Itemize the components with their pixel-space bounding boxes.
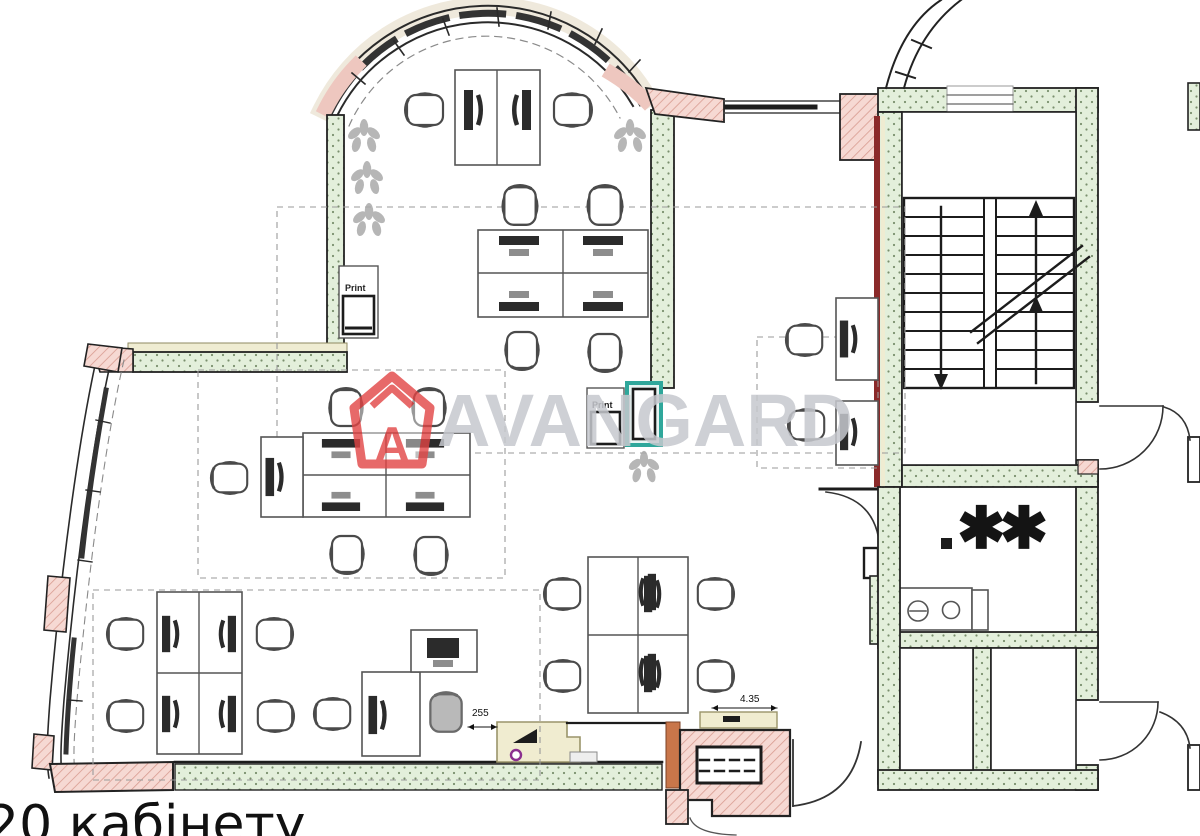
- chair: [257, 618, 293, 650]
- plan-caption: 20 кабінету: [0, 795, 306, 836]
- floor-plan-drawing: ✱✱ 255 4.35: [0, 0, 1200, 836]
- stair-window: [947, 86, 1013, 114]
- plant-icon: [351, 203, 387, 237]
- printer-label: Print: [345, 283, 366, 293]
- stove-icon: [943, 602, 960, 619]
- chair: [588, 334, 622, 372]
- wall-top-window: [646, 88, 882, 160]
- double-door-upper: [1100, 406, 1190, 469]
- svg-text:4.35: 4.35: [740, 694, 760, 705]
- chair: [414, 537, 448, 575]
- desk-cluster-a: [478, 186, 648, 372]
- wall-bottom: [50, 762, 662, 792]
- plant-icon: [349, 161, 385, 195]
- chair: [107, 700, 143, 732]
- chair: [698, 660, 734, 692]
- desk-single: [314, 672, 420, 756]
- chair: [786, 324, 822, 356]
- plant-icon: [346, 119, 382, 153]
- porch-stairs: [666, 730, 790, 835]
- door-office-to-corridor: [826, 492, 880, 551]
- chair: [406, 93, 444, 127]
- entrance-door: [793, 740, 861, 806]
- floor-plan-page: ✱✱ 255 4.35: [0, 0, 1200, 836]
- marker-square: [941, 538, 952, 549]
- kitchenette-counter: [886, 588, 988, 630]
- desk-cluster-top: [406, 70, 592, 165]
- chair: [505, 332, 539, 370]
- plant-icon: [612, 119, 648, 153]
- chair: [258, 700, 294, 732]
- printer-station-1: Print: [339, 266, 378, 338]
- chair: [430, 693, 461, 732]
- right-corridor-wall: [1076, 406, 1200, 790]
- double-door-lower: [1100, 702, 1190, 760]
- corridor-curved-wall: [886, 0, 961, 88]
- pilaster: [84, 344, 122, 372]
- desk-cluster-c: [107, 592, 293, 754]
- chair: [330, 536, 364, 574]
- brand-watermark-text: AVANGARD: [437, 379, 853, 462]
- wall-left-horizontal: [92, 343, 347, 372]
- chair: [502, 186, 537, 225]
- service-rooms: ✱✱: [820, 487, 1098, 790]
- chair: [211, 462, 247, 494]
- stairwell: [874, 86, 1098, 487]
- vestibule: [497, 722, 580, 762]
- brand-logo-letter: A: [374, 417, 410, 473]
- desk-l-shaped: [411, 630, 477, 732]
- wall-fragment-right-edge: [1188, 83, 1200, 130]
- wall-right-of-top-room: [651, 110, 674, 388]
- stair-flights: [904, 198, 1089, 390]
- room-marker-stars: ✱✱: [957, 496, 1047, 561]
- desk-cluster-d: [544, 557, 733, 713]
- porch-side-wall: [666, 722, 680, 788]
- chair: [107, 618, 143, 650]
- chair: [544, 660, 580, 692]
- chair: [314, 698, 350, 730]
- chair: [587, 186, 622, 225]
- chair: [554, 93, 592, 127]
- dimension-435: 4.35: [712, 694, 777, 711]
- chair: [698, 578, 734, 610]
- dimension-255: 255: [468, 708, 497, 730]
- svg-text:255: 255: [472, 708, 489, 719]
- pilaster: [44, 576, 70, 632]
- chair: [544, 578, 580, 610]
- marker-purple-circle: [511, 750, 521, 760]
